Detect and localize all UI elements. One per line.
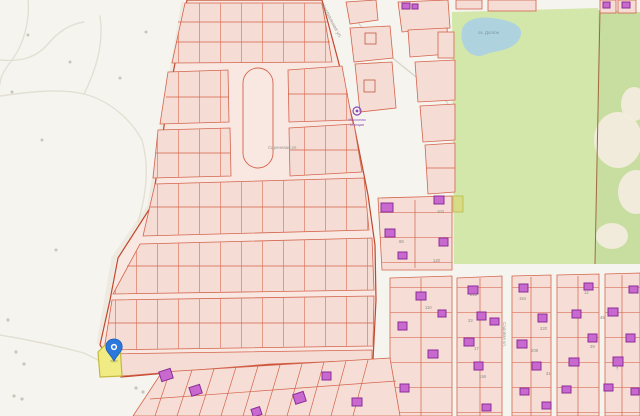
map-canvas[interactable]: 104 88 120 218 154 12 33 220 45 17 208 2…: [0, 0, 640, 416]
parcel-number: 208: [531, 348, 539, 353]
parcel-number: 120: [433, 258, 441, 263]
street-label-vertical: Садовая ул.: [502, 322, 507, 347]
poi-label-line2: станция: [350, 123, 364, 127]
vegetation-layer: [452, 8, 640, 264]
parcel-number: 12: [584, 290, 589, 295]
parcel-number: 154: [519, 296, 527, 301]
map-viewport[interactable]: 104 88 120 218 154 12 33 220 45 17 208 2…: [0, 0, 640, 416]
poi-label-line1: Насосная: [348, 118, 365, 122]
parcel-number: 218: [470, 292, 478, 297]
parcel-number: 31: [546, 371, 551, 376]
parcel-number: 110: [425, 305, 432, 310]
parcel-number: 104: [437, 209, 445, 214]
olive-parcel: [453, 196, 463, 212]
parcel-number: 17: [474, 346, 479, 351]
parcel-number: 220: [540, 326, 548, 331]
pond-label: оз. Долгое: [478, 30, 500, 35]
parcel-number: 88: [399, 239, 404, 244]
parcel-number: 156: [479, 374, 487, 379]
parcel-number: 33: [468, 318, 473, 323]
street-label-inner: Сиреневая ул.: [268, 145, 298, 150]
parcel-number: 29: [590, 344, 595, 349]
loop-green-oval: [243, 68, 273, 168]
parcel-number: 45: [600, 315, 605, 320]
